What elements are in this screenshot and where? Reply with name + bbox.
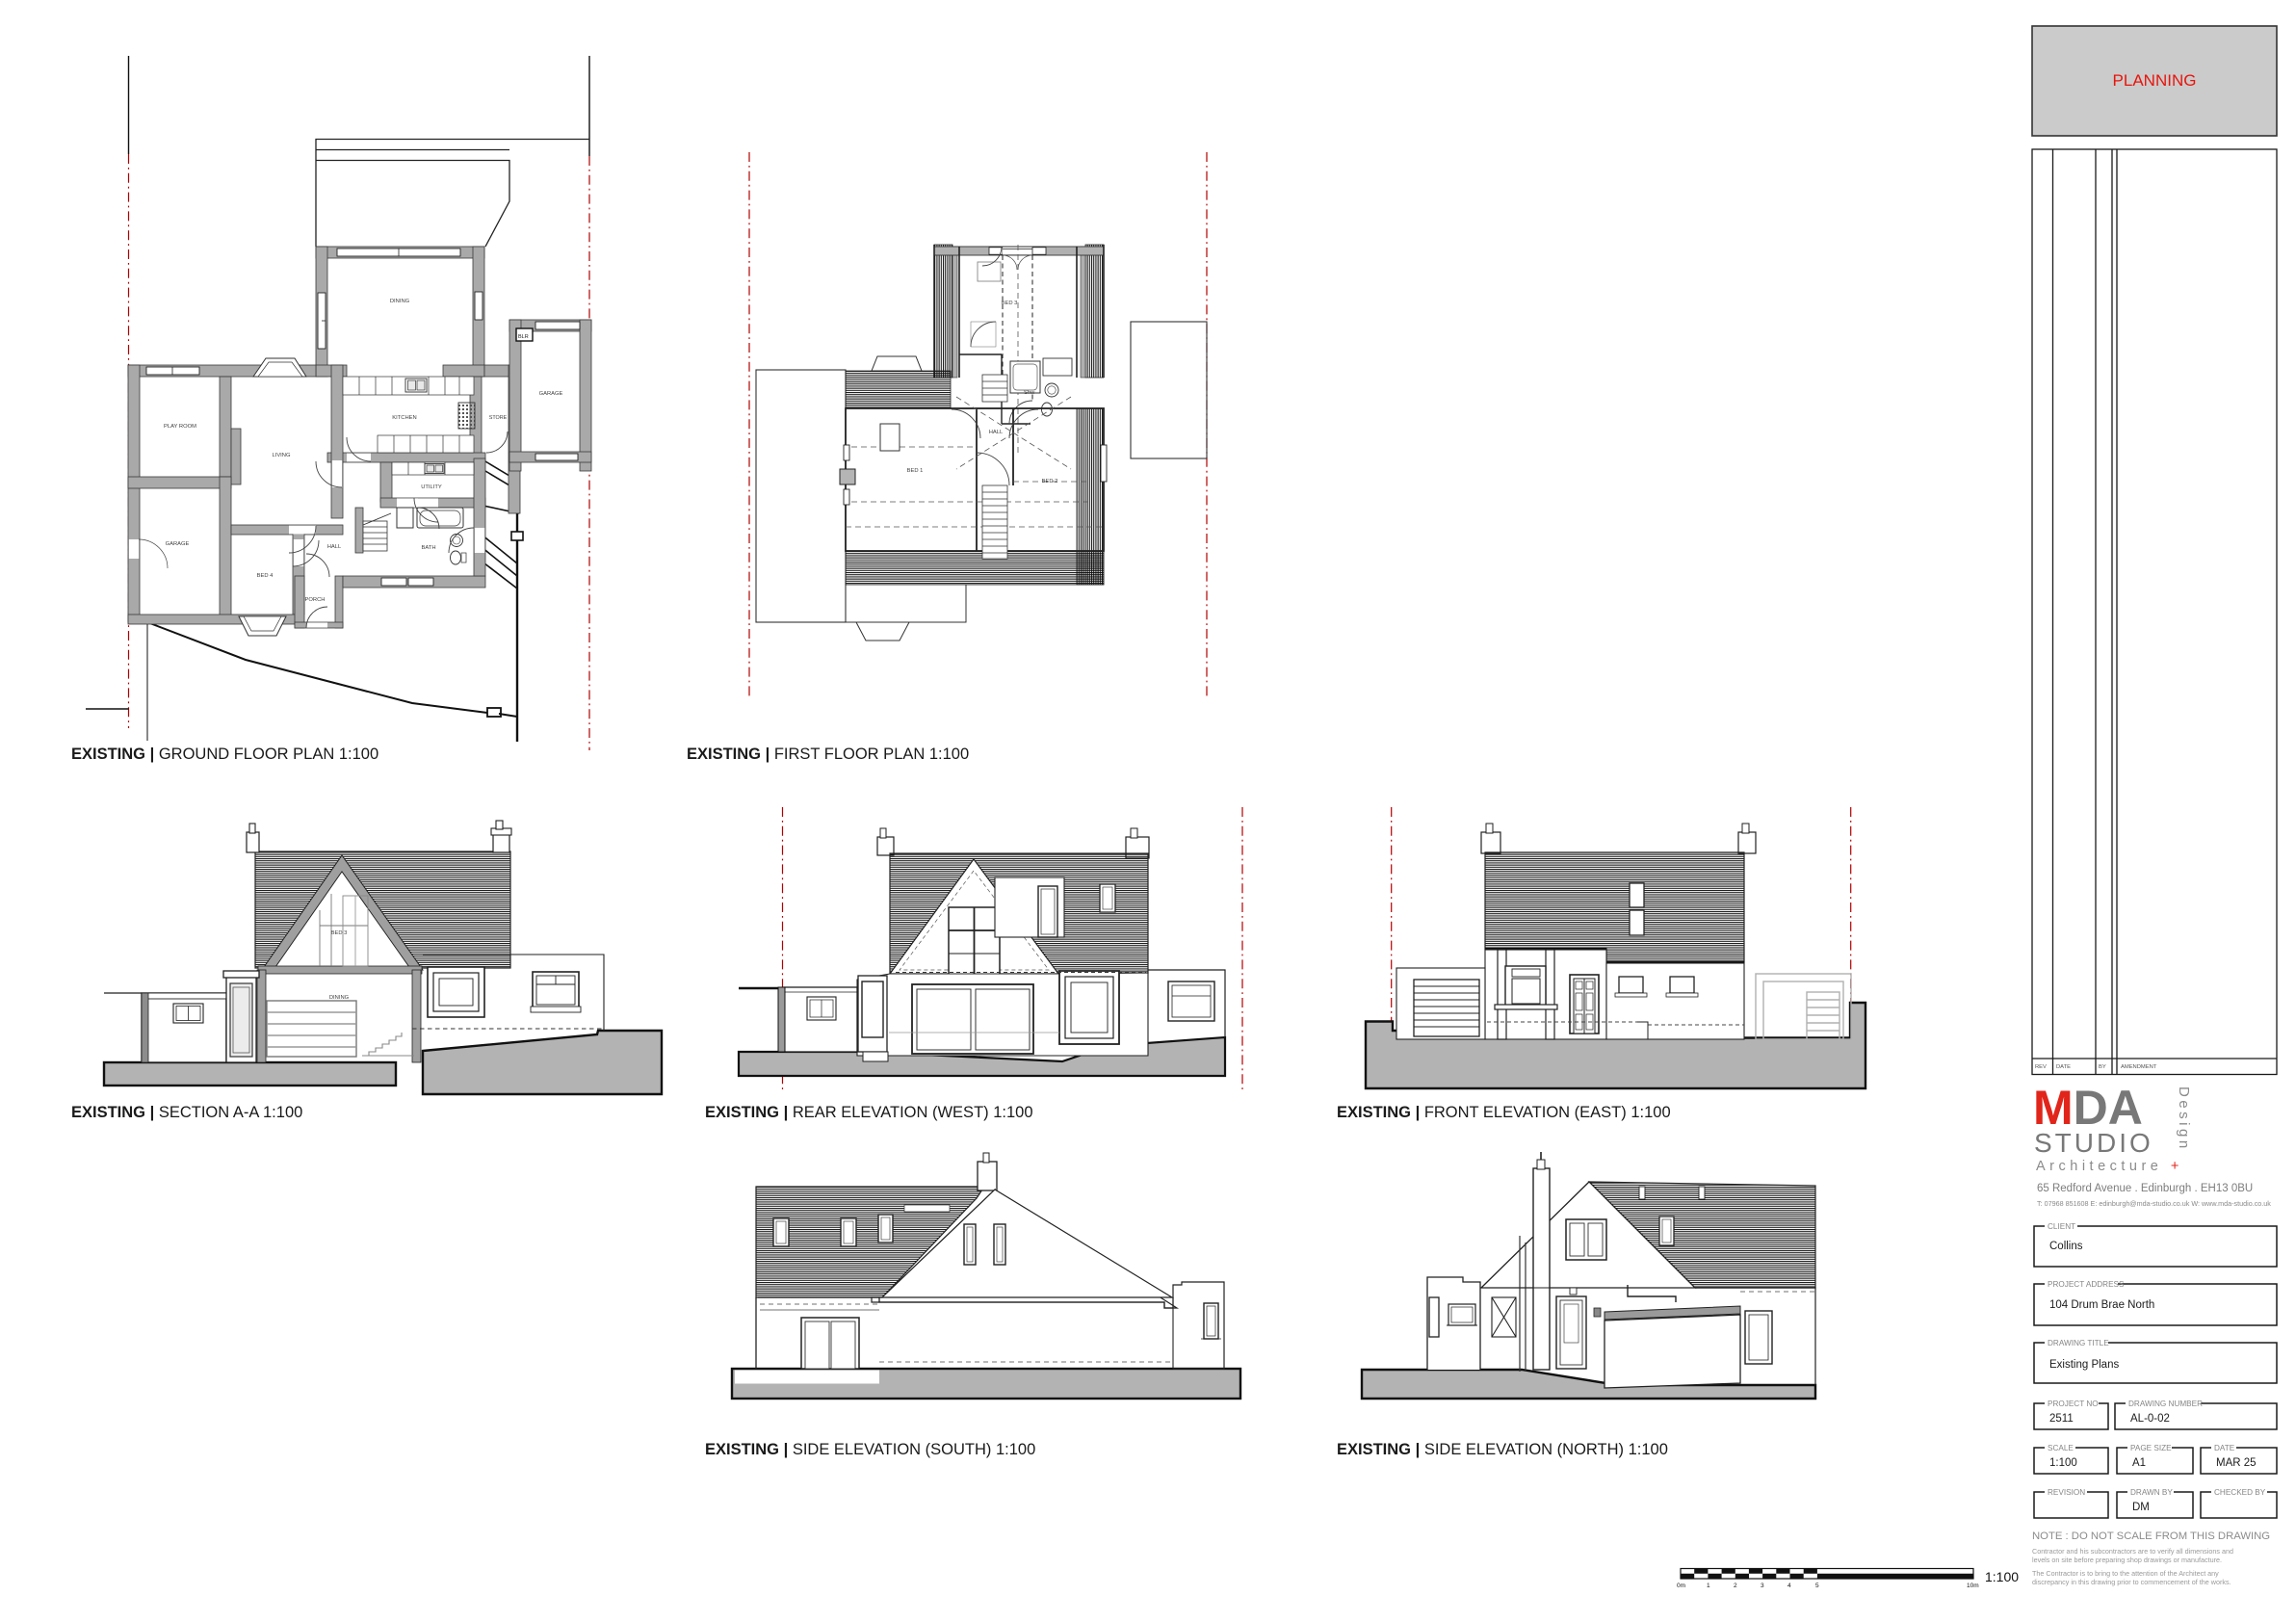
svg-text:MAR 25: MAR 25 bbox=[2216, 1457, 2257, 1469]
svg-text:BED 1: BED 1 bbox=[907, 468, 924, 474]
svg-text:Architecture +: Architecture + bbox=[2036, 1159, 2183, 1174]
svg-text:2511: 2511 bbox=[2049, 1413, 2074, 1425]
svg-text:EXISTING | SIDE ELEVATION (NOR: EXISTING | SIDE ELEVATION (NORTH) 1:100 bbox=[1337, 1441, 1668, 1458]
svg-text:BATH: BATH bbox=[421, 545, 435, 551]
svg-text:SCALE: SCALE bbox=[2048, 1444, 2074, 1452]
svg-text:1:100: 1:100 bbox=[1985, 1569, 2019, 1584]
svg-text:BED 3: BED 3 bbox=[331, 930, 348, 936]
svg-text:EXISTING | FRONT ELEVATION (EA: EXISTING | FRONT ELEVATION (EAST) 1:100 bbox=[1337, 1104, 1671, 1121]
svg-text:PROJECT ADDRESS: PROJECT ADDRESS bbox=[2048, 1280, 2125, 1289]
svg-text:PLANNING: PLANNING bbox=[2113, 71, 2197, 90]
svg-text:DATE: DATE bbox=[2214, 1444, 2235, 1452]
svg-text:Shw: Shw bbox=[1024, 390, 1035, 396]
svg-text:EXISTING | SIDE ELEVATION (SOU: EXISTING | SIDE ELEVATION (SOUTH) 1:100 bbox=[705, 1441, 1035, 1458]
svg-text:Existing Plans: Existing Plans bbox=[2049, 1359, 2119, 1371]
svg-text:DRAWN BY: DRAWN BY bbox=[2130, 1488, 2173, 1497]
svg-text:PROJECT NO: PROJECT NO bbox=[2048, 1400, 2099, 1408]
svg-text:EXISTING | GROUND FLOOR PLAN 1: EXISTING | GROUND FLOOR PLAN 1:100 bbox=[71, 746, 378, 763]
svg-text:1: 1 bbox=[1707, 1583, 1710, 1589]
svg-text:2: 2 bbox=[1734, 1583, 1737, 1589]
svg-text:HALL: HALL bbox=[327, 544, 342, 550]
svg-text:NOTE : DO NOT SCALE FROM THIS: NOTE : DO NOT SCALE FROM THIS DRAWING bbox=[2032, 1530, 2270, 1542]
svg-text:Design: Design bbox=[2176, 1086, 2192, 1152]
svg-text:EXISTING | REAR ELEVATION (WES: EXISTING | REAR ELEVATION (WEST) 1:100 bbox=[705, 1104, 1033, 1121]
svg-text:DRAWING TITLE: DRAWING TITLE bbox=[2048, 1339, 2109, 1347]
svg-text:AL-0-02: AL-0-02 bbox=[2130, 1413, 2170, 1425]
svg-text:EXISTING | SECTION A-A 1:100: EXISTING | SECTION A-A 1:100 bbox=[71, 1104, 302, 1121]
svg-text:levels on site before preparin: levels on site before preparing shop dra… bbox=[2032, 1556, 2222, 1564]
svg-text:104 Drum Brae North: 104 Drum Brae North bbox=[2049, 1299, 2154, 1311]
svg-text:1:100: 1:100 bbox=[2049, 1457, 2077, 1469]
svg-text:0m: 0m bbox=[1677, 1583, 1685, 1589]
svg-text:BED 2: BED 2 bbox=[1042, 479, 1058, 484]
svg-text:DRAWING NUMBER: DRAWING NUMBER bbox=[2128, 1400, 2203, 1408]
svg-text:CLIENT: CLIENT bbox=[2048, 1222, 2075, 1231]
svg-text:5: 5 bbox=[1815, 1583, 1819, 1589]
svg-text:KITCHEN: KITCHEN bbox=[392, 415, 416, 421]
svg-text:STORE: STORE bbox=[489, 415, 508, 421]
svg-text:PORCH: PORCH bbox=[305, 597, 326, 603]
svg-text:CHECKED BY: CHECKED BY bbox=[2214, 1488, 2266, 1497]
svg-text:PLAY ROOM: PLAY ROOM bbox=[164, 424, 196, 430]
svg-text:A1: A1 bbox=[2132, 1457, 2146, 1469]
svg-text:BY: BY bbox=[2099, 1064, 2106, 1070]
svg-text:DINING: DINING bbox=[390, 299, 410, 304]
svg-text:65 Redford Avenue . Edinburgh: 65 Redford Avenue . Edinburgh . EH13 0BU bbox=[2037, 1183, 2253, 1194]
svg-text:BLR: BLR bbox=[518, 334, 529, 340]
svg-text:PAGE SIZE: PAGE SIZE bbox=[2130, 1444, 2172, 1452]
svg-text:DM: DM bbox=[2132, 1502, 2150, 1513]
svg-text:The Contractor is to bring to: The Contractor is to bring to the attent… bbox=[2032, 1569, 2219, 1578]
svg-text:10m: 10m bbox=[1967, 1583, 1979, 1589]
svg-text:T: 07968 851608 E: edinburgh: T: 07968 851608 E: edinburgh@mda-studio.… bbox=[2037, 1199, 2271, 1208]
svg-text:GARAGE: GARAGE bbox=[539, 391, 563, 397]
svg-text:MDA: MDA bbox=[2033, 1081, 2143, 1135]
svg-text:BED 3: BED 3 bbox=[1002, 301, 1018, 306]
svg-text:EXISTING | FIRST FLOOR PLAN 1:: EXISTING | FIRST FLOOR PLAN 1:100 bbox=[687, 746, 969, 763]
svg-text:BED 4: BED 4 bbox=[257, 573, 274, 579]
svg-text:UTILITY: UTILITY bbox=[421, 484, 442, 490]
svg-text:GARAGE: GARAGE bbox=[166, 541, 190, 547]
svg-text:REVISION: REVISION bbox=[2048, 1488, 2085, 1497]
svg-text:DINING: DINING bbox=[329, 995, 350, 1001]
svg-text:LIVING: LIVING bbox=[272, 453, 290, 458]
svg-text:AMENDMENT: AMENDMENT bbox=[2121, 1064, 2157, 1070]
svg-text:REV: REV bbox=[2035, 1064, 2047, 1070]
svg-text:STUDIO: STUDIO bbox=[2034, 1128, 2153, 1158]
svg-text:HALL: HALL bbox=[989, 430, 1004, 435]
svg-text:3: 3 bbox=[1761, 1583, 1764, 1589]
svg-text:Contractor and his subcontract: Contractor and his subcontractors are to… bbox=[2032, 1547, 2233, 1556]
svg-text:4: 4 bbox=[1787, 1583, 1791, 1589]
svg-text:Collins: Collins bbox=[2049, 1241, 2083, 1252]
svg-text:DATE: DATE bbox=[2056, 1064, 2071, 1070]
svg-text:discrepancy in this drawing pr: discrepancy in this drawing prior to com… bbox=[2032, 1578, 2231, 1586]
